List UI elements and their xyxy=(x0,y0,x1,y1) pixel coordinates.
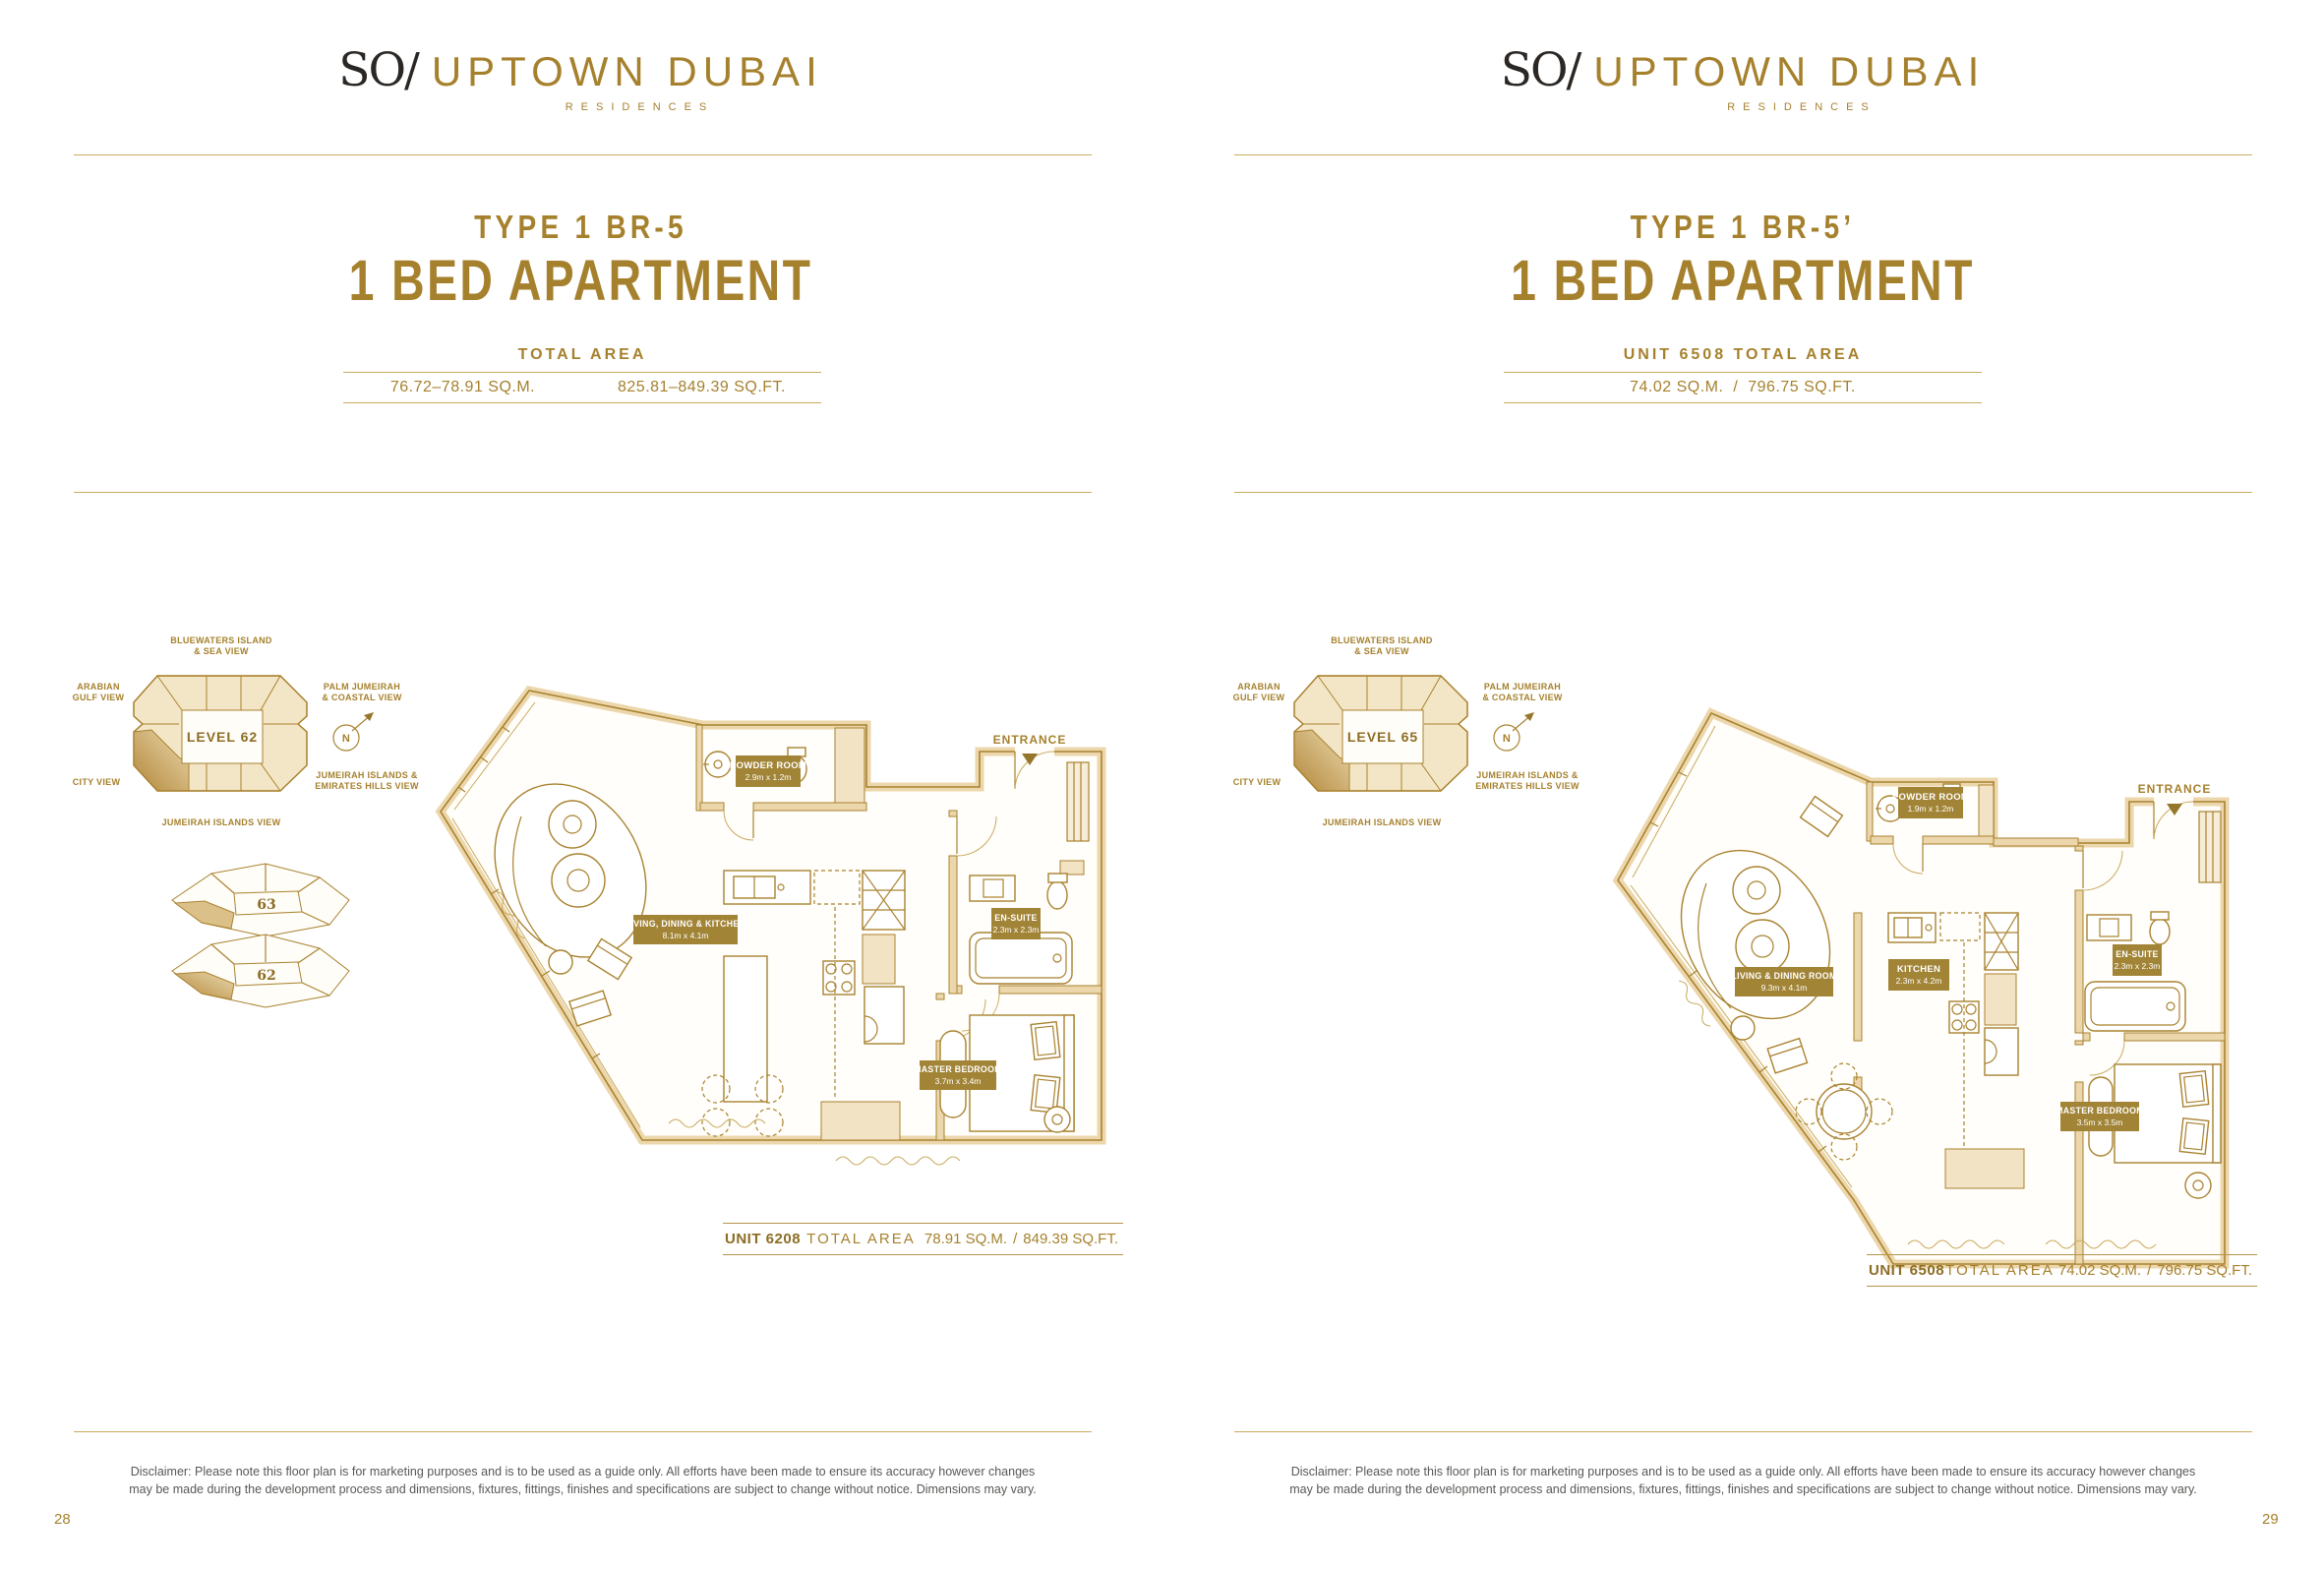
stack-lower-label: 62 xyxy=(257,968,275,984)
floor-stack-diagram: 63 62 xyxy=(118,856,374,1013)
svg-text:& COASTAL VIEW: & COASTAL VIEW xyxy=(1482,693,1563,702)
stack-plate-upper: 63 xyxy=(172,864,349,936)
north-arrow-icon: N xyxy=(1494,712,1534,751)
view-label-bottom: JUMEIRAH ISLANDS VIEW xyxy=(1323,817,1442,827)
stack-upper-label: 63 xyxy=(257,897,275,913)
svg-text:N: N xyxy=(342,733,350,745)
brand-name: UPTOWN DUBAI xyxy=(432,48,823,94)
area-table: TOTAL AREA 76.72–78.91 SQ.M. 825.81–849.… xyxy=(343,346,821,403)
svg-text:& SEA VIEW: & SEA VIEW xyxy=(1354,646,1409,656)
area-sqm: 76.72–78.91 SQ.M. xyxy=(343,379,582,396)
svg-text:EN-SUITE: EN-SUITE xyxy=(994,913,1037,923)
brand-tagline: RESIDENCES xyxy=(0,101,1162,113)
svg-text:EMIRATES HILLS VIEW: EMIRATES HILLS VIEW xyxy=(315,781,419,791)
entrance-label: ENTRANCE xyxy=(993,733,1067,747)
svg-text:GULF VIEW: GULF VIEW xyxy=(1233,693,1285,702)
svg-text:MASTER BEDROOM: MASTER BEDROOM xyxy=(914,1064,1002,1074)
room-label-powder: POWDER ROOM 2.9m x 1.2m xyxy=(730,755,806,787)
ensuite-wc-icon xyxy=(1047,874,1067,909)
view-label-top: BLUEWATERS ISLAND xyxy=(170,635,272,645)
view-label-top: BLUEWATERS ISLAND xyxy=(1331,635,1433,645)
unit-number: UNIT 6208 xyxy=(725,1231,801,1247)
page-number: 28 xyxy=(54,1511,71,1528)
svg-text:MASTER BEDROOM: MASTER BEDROOM xyxy=(2056,1106,2144,1116)
page-title: 1 BED APARTMENT xyxy=(116,248,1045,314)
svg-text:9.3m x 4.1m: 9.3m x 4.1m xyxy=(1761,983,1808,993)
svg-text:POWDER ROOM: POWDER ROOM xyxy=(1892,792,1969,803)
page-title: 1 BED APARTMENT xyxy=(1278,248,2208,314)
side-table-icon xyxy=(1044,1107,1070,1132)
divider xyxy=(1234,1431,2252,1432)
divider xyxy=(74,492,1092,493)
svg-text:POWDER ROOM: POWDER ROOM xyxy=(730,760,806,771)
room-label-living: LIVING, DINING & KITCHEN 8.1m x 4.1m xyxy=(626,915,746,944)
svg-text:2.9m x 1.2m: 2.9m x 1.2m xyxy=(745,772,792,782)
disclaimer: Disclaimer: Please note this floor plan … xyxy=(1234,1463,2252,1498)
room-label-master: MASTER BEDROOM 3.5m x 3.5m xyxy=(2056,1102,2144,1131)
view-label-bottom: JUMEIRAH ISLANDS VIEW xyxy=(162,817,281,827)
stack-plate-lower: 62 xyxy=(172,935,349,1007)
area-table: UNIT 6508 TOTAL AREA 74.02 SQ.M. / 796.7… xyxy=(1504,346,1982,403)
svg-text:& COASTAL VIEW: & COASTAL VIEW xyxy=(322,693,402,702)
coffee-table-icon xyxy=(1731,1016,1755,1040)
svg-text:& SEA VIEW: & SEA VIEW xyxy=(194,646,249,656)
brand-mark: SO/ xyxy=(1501,43,1580,97)
view-label-left-lower: CITY VIEW xyxy=(73,777,121,787)
area-header: TOTAL AREA xyxy=(343,346,821,372)
brand-name: UPTOWN DUBAI xyxy=(1593,48,1985,94)
view-label-right-lower: JUMEIRAH ISLANDS & xyxy=(316,770,418,780)
unit-area-value: 78.91 SQ.M./849.39 SQ.FT. xyxy=(922,1231,1121,1247)
view-label-right-upper: PALM JUMEIRAH xyxy=(1484,682,1561,692)
svg-text:2.3m x 4.2m: 2.3m x 4.2m xyxy=(1896,976,1942,986)
unit-area-table: UNIT 6508 TOTAL AREA 74.02 SQ.M./796.75 … xyxy=(1867,1254,2257,1287)
svg-text:LIVING, DINING & KITCHEN: LIVING, DINING & KITCHEN xyxy=(626,919,746,929)
ensuite-vanity-icon xyxy=(2087,915,2131,940)
floor-plan: ENTRANCE xyxy=(1564,689,2272,1289)
room-label-powder: POWDER ROOM 1.9m x 1.2m xyxy=(1892,787,1969,818)
room-label-living: LIVING & DINING ROOM 9.3m x 4.1m xyxy=(1731,967,1836,996)
level-label: LEVEL 62 xyxy=(187,729,258,745)
brand-tagline: RESIDENCES xyxy=(1162,101,2324,113)
room-label-ensuite: EN-SUITE 2.3m x 2.3m xyxy=(2113,944,2162,976)
divider xyxy=(1234,154,2252,155)
side-table-icon xyxy=(2185,1173,2211,1198)
page-number: 29 xyxy=(2262,1511,2279,1528)
view-label-left-upper: ARABIAN xyxy=(77,682,120,692)
brand-mark: SO/ xyxy=(338,43,418,97)
page-left: SO/UPTOWN DUBAI RESIDENCES TYPE 1 BR-5 1… xyxy=(0,0,1162,1569)
unit-area-table: UNIT 6208 TOTAL AREA 78.91 SQ.M./849.39 … xyxy=(723,1223,1123,1255)
page-right: SO/UPTOWN DUBAI RESIDENCES TYPE 1 BR-5’ … xyxy=(1162,0,2324,1569)
divider xyxy=(1234,492,2252,493)
svg-text:8.1m x 4.1m: 8.1m x 4.1m xyxy=(663,931,709,940)
svg-text:2.3m x 2.3m: 2.3m x 2.3m xyxy=(2115,961,2161,971)
north-arrow-icon: N xyxy=(333,712,374,751)
stove-icon xyxy=(823,961,855,995)
room-label-kitchen: KITCHEN 2.3m x 4.2m xyxy=(1888,959,1949,991)
bathtub-icon xyxy=(2085,982,2185,1031)
svg-text:3.7m x 3.4m: 3.7m x 3.4m xyxy=(935,1076,982,1086)
ensuite-vanity-icon xyxy=(970,875,1015,901)
ensuite-wc-icon xyxy=(2150,912,2170,944)
level-key-diagram: LEVEL 65 BLUEWATERS ISLAND & SEA VIEW AR… xyxy=(1220,620,1593,856)
area-sqft: 825.81–849.39 SQ.FT. xyxy=(582,379,821,396)
view-label-right-upper: PALM JUMEIRAH xyxy=(324,682,400,692)
disclaimer: Disclaimer: Please note this floor plan … xyxy=(74,1463,1092,1498)
floor-plan: ENTRANCE xyxy=(423,669,1131,1239)
svg-text:GULF VIEW: GULF VIEW xyxy=(73,693,125,702)
brand-logo: SO/UPTOWN DUBAI RESIDENCES xyxy=(0,43,1162,113)
svg-text:EN-SUITE: EN-SUITE xyxy=(2115,949,2158,959)
divider xyxy=(74,154,1092,155)
view-label-left-upper: ARABIAN xyxy=(1237,682,1281,692)
bathtub-icon xyxy=(970,933,1072,984)
room-label-ensuite: EN-SUITE 2.3m x 2.3m xyxy=(991,908,1041,939)
svg-text:LIVING & DINING ROOM: LIVING & DINING ROOM xyxy=(1731,971,1836,981)
area-header: UNIT 6508 TOTAL AREA xyxy=(1504,346,1982,372)
level-key-diagram: LEVEL 62 BLUEWATERS ISLAND & SEA VIEW AR… xyxy=(59,620,433,856)
divider xyxy=(74,1431,1092,1432)
unit-area-label: TOTAL AREA xyxy=(806,1231,916,1247)
unit-number: UNIT 6508 xyxy=(1869,1262,1944,1279)
area-value: 74.02 SQ.M. / 796.75 SQ.FT. xyxy=(1504,372,1982,403)
room-label-master: MASTER BEDROOM 3.7m x 3.4m xyxy=(914,1060,1002,1090)
unit-area-value: 74.02 SQ.M./796.75 SQ.FT. xyxy=(2056,1262,2255,1279)
coffee-table-icon xyxy=(549,950,572,974)
svg-text:1.9m x 1.2m: 1.9m x 1.2m xyxy=(1908,804,1954,814)
view-label-left-lower: CITY VIEW xyxy=(1233,777,1281,787)
type-title: TYPE 1 BR-5’ xyxy=(1249,209,2237,246)
entrance-label: ENTRANCE xyxy=(2138,782,2212,796)
svg-text:KITCHEN: KITCHEN xyxy=(1897,964,1940,975)
brochure-spread: SO/UPTOWN DUBAI RESIDENCES TYPE 1 BR-5 1… xyxy=(0,0,2324,1569)
svg-text:N: N xyxy=(1503,733,1511,745)
type-title: TYPE 1 BR-5 xyxy=(88,209,1075,246)
svg-text:2.3m x 2.3m: 2.3m x 2.3m xyxy=(993,925,1040,935)
svg-text:3.5m x 3.5m: 3.5m x 3.5m xyxy=(2077,1117,2123,1127)
unit-area-label: TOTAL AREA xyxy=(1945,1262,2055,1279)
brand-logo: SO/UPTOWN DUBAI RESIDENCES xyxy=(1162,43,2324,113)
level-label: LEVEL 65 xyxy=(1347,729,1418,745)
